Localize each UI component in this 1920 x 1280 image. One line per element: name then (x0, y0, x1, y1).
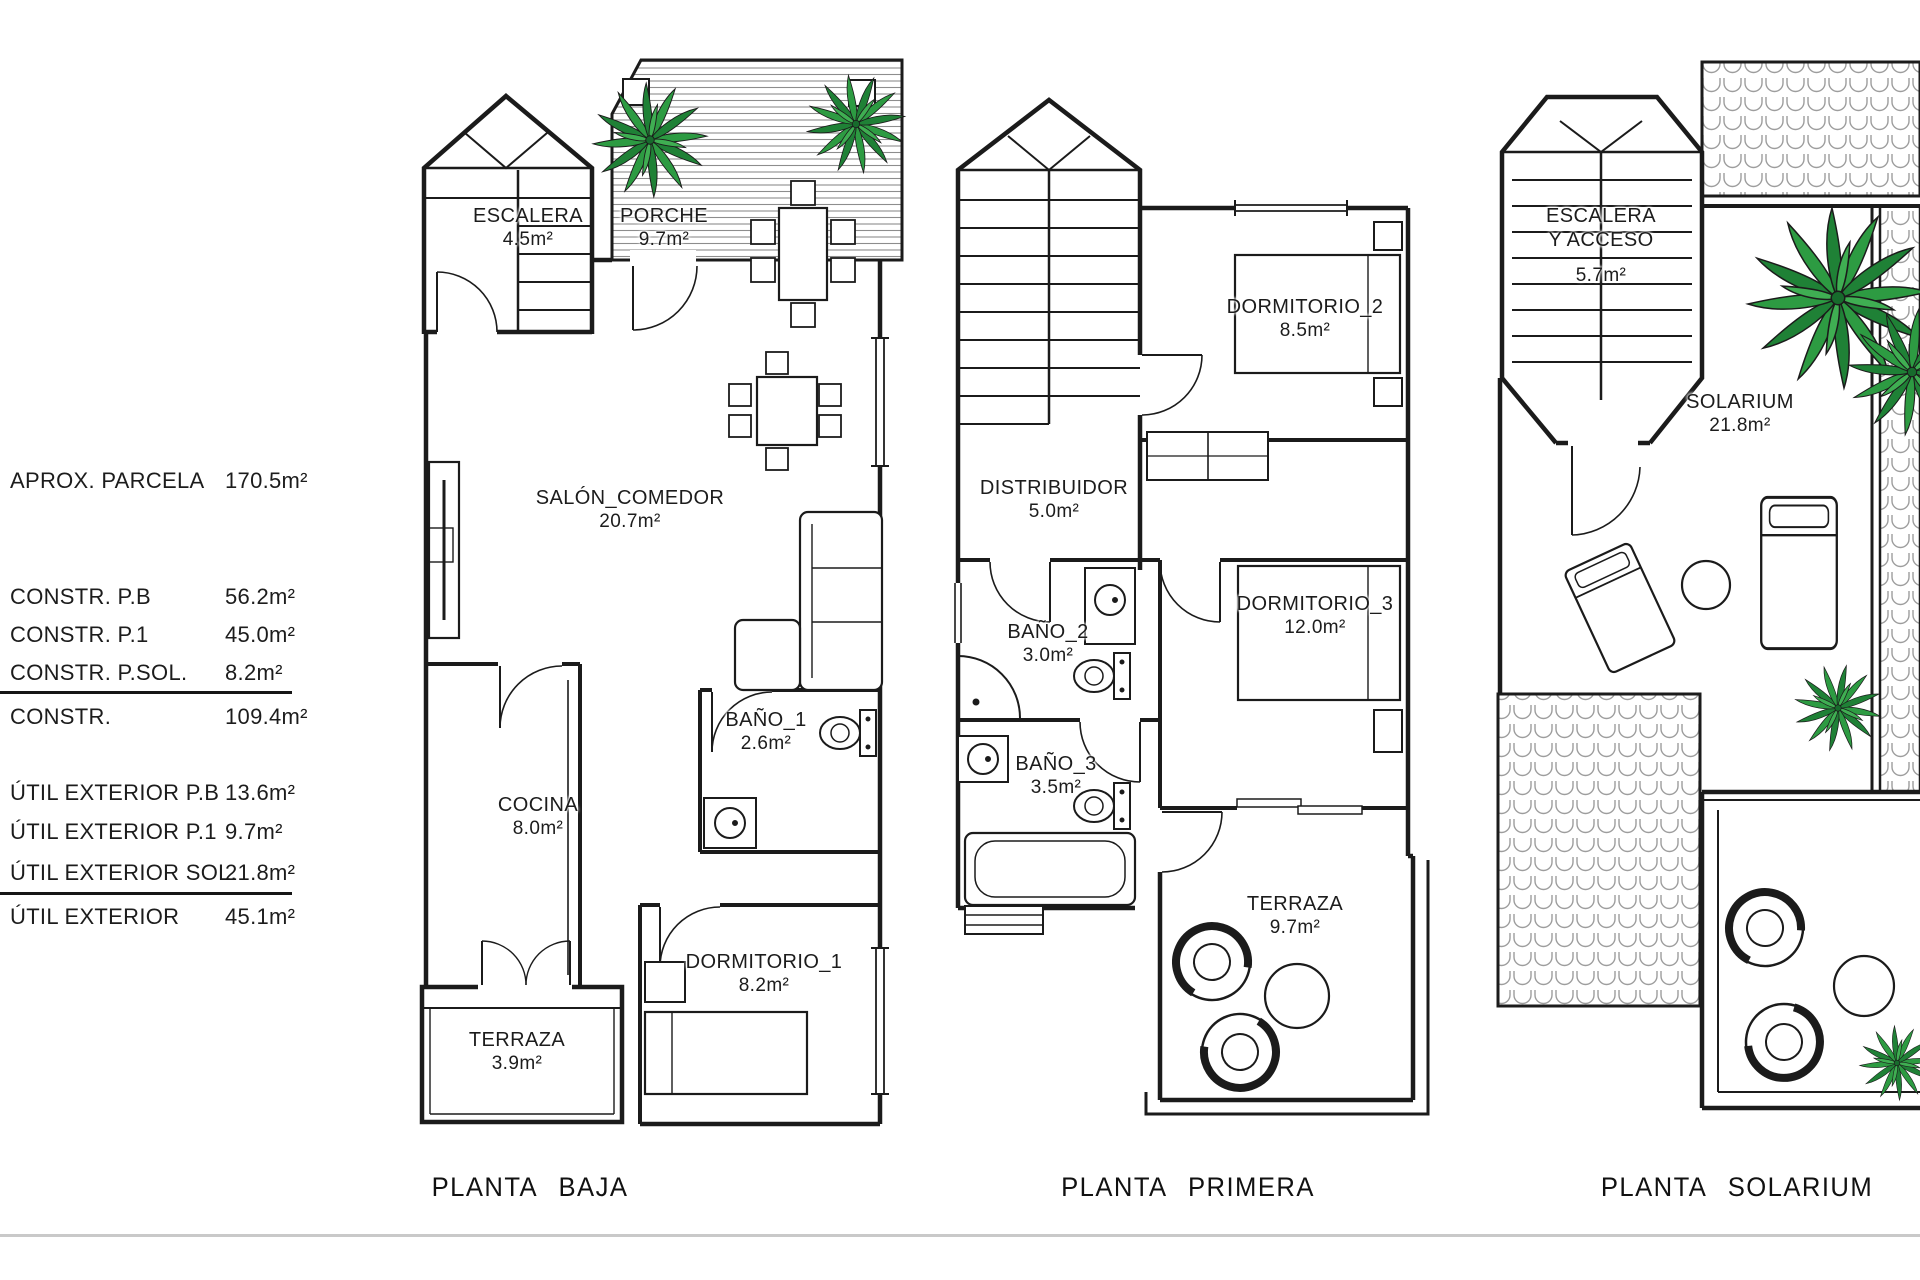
room-label-distribuidor: DISTRIBUIDOR 5.0m² (980, 476, 1128, 524)
legend-value: 21.8m² (225, 860, 295, 886)
legend-value: 13.6m² (225, 780, 295, 806)
legend-value: 109.4m² (225, 704, 308, 730)
legend-row-util-pb: ÚTIL EXTERIOR P.B 13.6m² (10, 780, 340, 806)
room-label-cocina: COCINA 8.0m² (498, 793, 578, 841)
legend-label: CONSTR. (10, 704, 111, 730)
legend-label: ÚTIL EXTERIOR (10, 904, 179, 930)
legend-label: CONSTR. P.1 (10, 622, 149, 648)
room-label-escalera-acceso: ESCALERA Y ACCESO 5.7m² (1546, 204, 1656, 288)
legend-label: APROX. PARCELA (10, 468, 205, 494)
legend-divider (0, 691, 292, 694)
room-label-porche: PORCHE 9.7m² (620, 204, 708, 252)
legend-row-constr-psol: CONSTR. P.SOL. 8.2m² (10, 660, 340, 686)
legend-row-constr-total: CONSTR. 109.4m² (10, 704, 340, 730)
room-label-salon-comedor: SALÓN_COMEDOR 20.7m² (536, 486, 725, 534)
room-label-terraza-baja: TERRAZA 3.9m² (469, 1028, 565, 1076)
room-label-terraza-primera: TERRAZA 9.7m² (1247, 892, 1343, 940)
legend-row-parcela: APROX. PARCELA 170.5m² (10, 468, 340, 494)
legend-label: ÚTIL EXTERIOR SOL. (10, 860, 237, 886)
legend-value: 45.0m² (225, 622, 295, 648)
legend-row-constr-p1: CONSTR. P.1 45.0m² (10, 622, 340, 648)
legend-label: ÚTIL EXTERIOR P.1 (10, 819, 217, 845)
legend-value: 45.1m² (225, 904, 295, 930)
legend-row-constr-pb: CONSTR. P.B 56.2m² (10, 584, 340, 610)
caption-planta-primera: PLANTA PRIMERA (1061, 1172, 1315, 1203)
room-label-dormitorio-3: DORMITORIO_3 12.0m² (1237, 592, 1394, 640)
caption-planta-baja: PLANTA BAJA (432, 1172, 629, 1203)
legend-label: CONSTR. P.B (10, 584, 151, 610)
room-label-dormitorio-1: DORMITORIO_1 8.2m² (686, 950, 843, 998)
legend-value: 170.5m² (225, 468, 308, 494)
room-label-escalera: ESCALERA 4.5m² (473, 204, 583, 252)
room-label-bano-2: BAÑO_2 3.0m² (1007, 620, 1088, 668)
legend-label: ÚTIL EXTERIOR P.B (10, 780, 219, 806)
legend-row-util-sol: ÚTIL EXTERIOR SOL. 21.8m² (10, 860, 340, 886)
legend-value: 56.2m² (225, 584, 295, 610)
room-label-dormitorio-2: DORMITORIO_2 8.5m² (1227, 295, 1384, 343)
legend-row-util-total: ÚTIL EXTERIOR 45.1m² (10, 904, 340, 930)
bottom-divider (0, 1234, 1920, 1237)
legend-value: 8.2m² (225, 660, 283, 686)
legend-label: CONSTR. P.SOL. (10, 660, 187, 686)
legend-value: 9.7m² (225, 819, 283, 845)
legend-row-util-p1: ÚTIL EXTERIOR P.1 9.7m² (10, 819, 340, 845)
room-label-bano-1: BAÑO_1 2.6m² (725, 708, 806, 756)
caption-planta-solarium: PLANTA SOLARIUM (1601, 1172, 1873, 1203)
floorplan-page: APROX. PARCELA 170.5m² CONSTR. P.B 56.2m… (0, 0, 1920, 1280)
legend-divider (0, 892, 292, 895)
room-label-bano-3: BAÑO_3 3.5m² (1015, 752, 1096, 800)
room-label-solarium: SOLARIUM 21.8m² (1686, 390, 1794, 438)
